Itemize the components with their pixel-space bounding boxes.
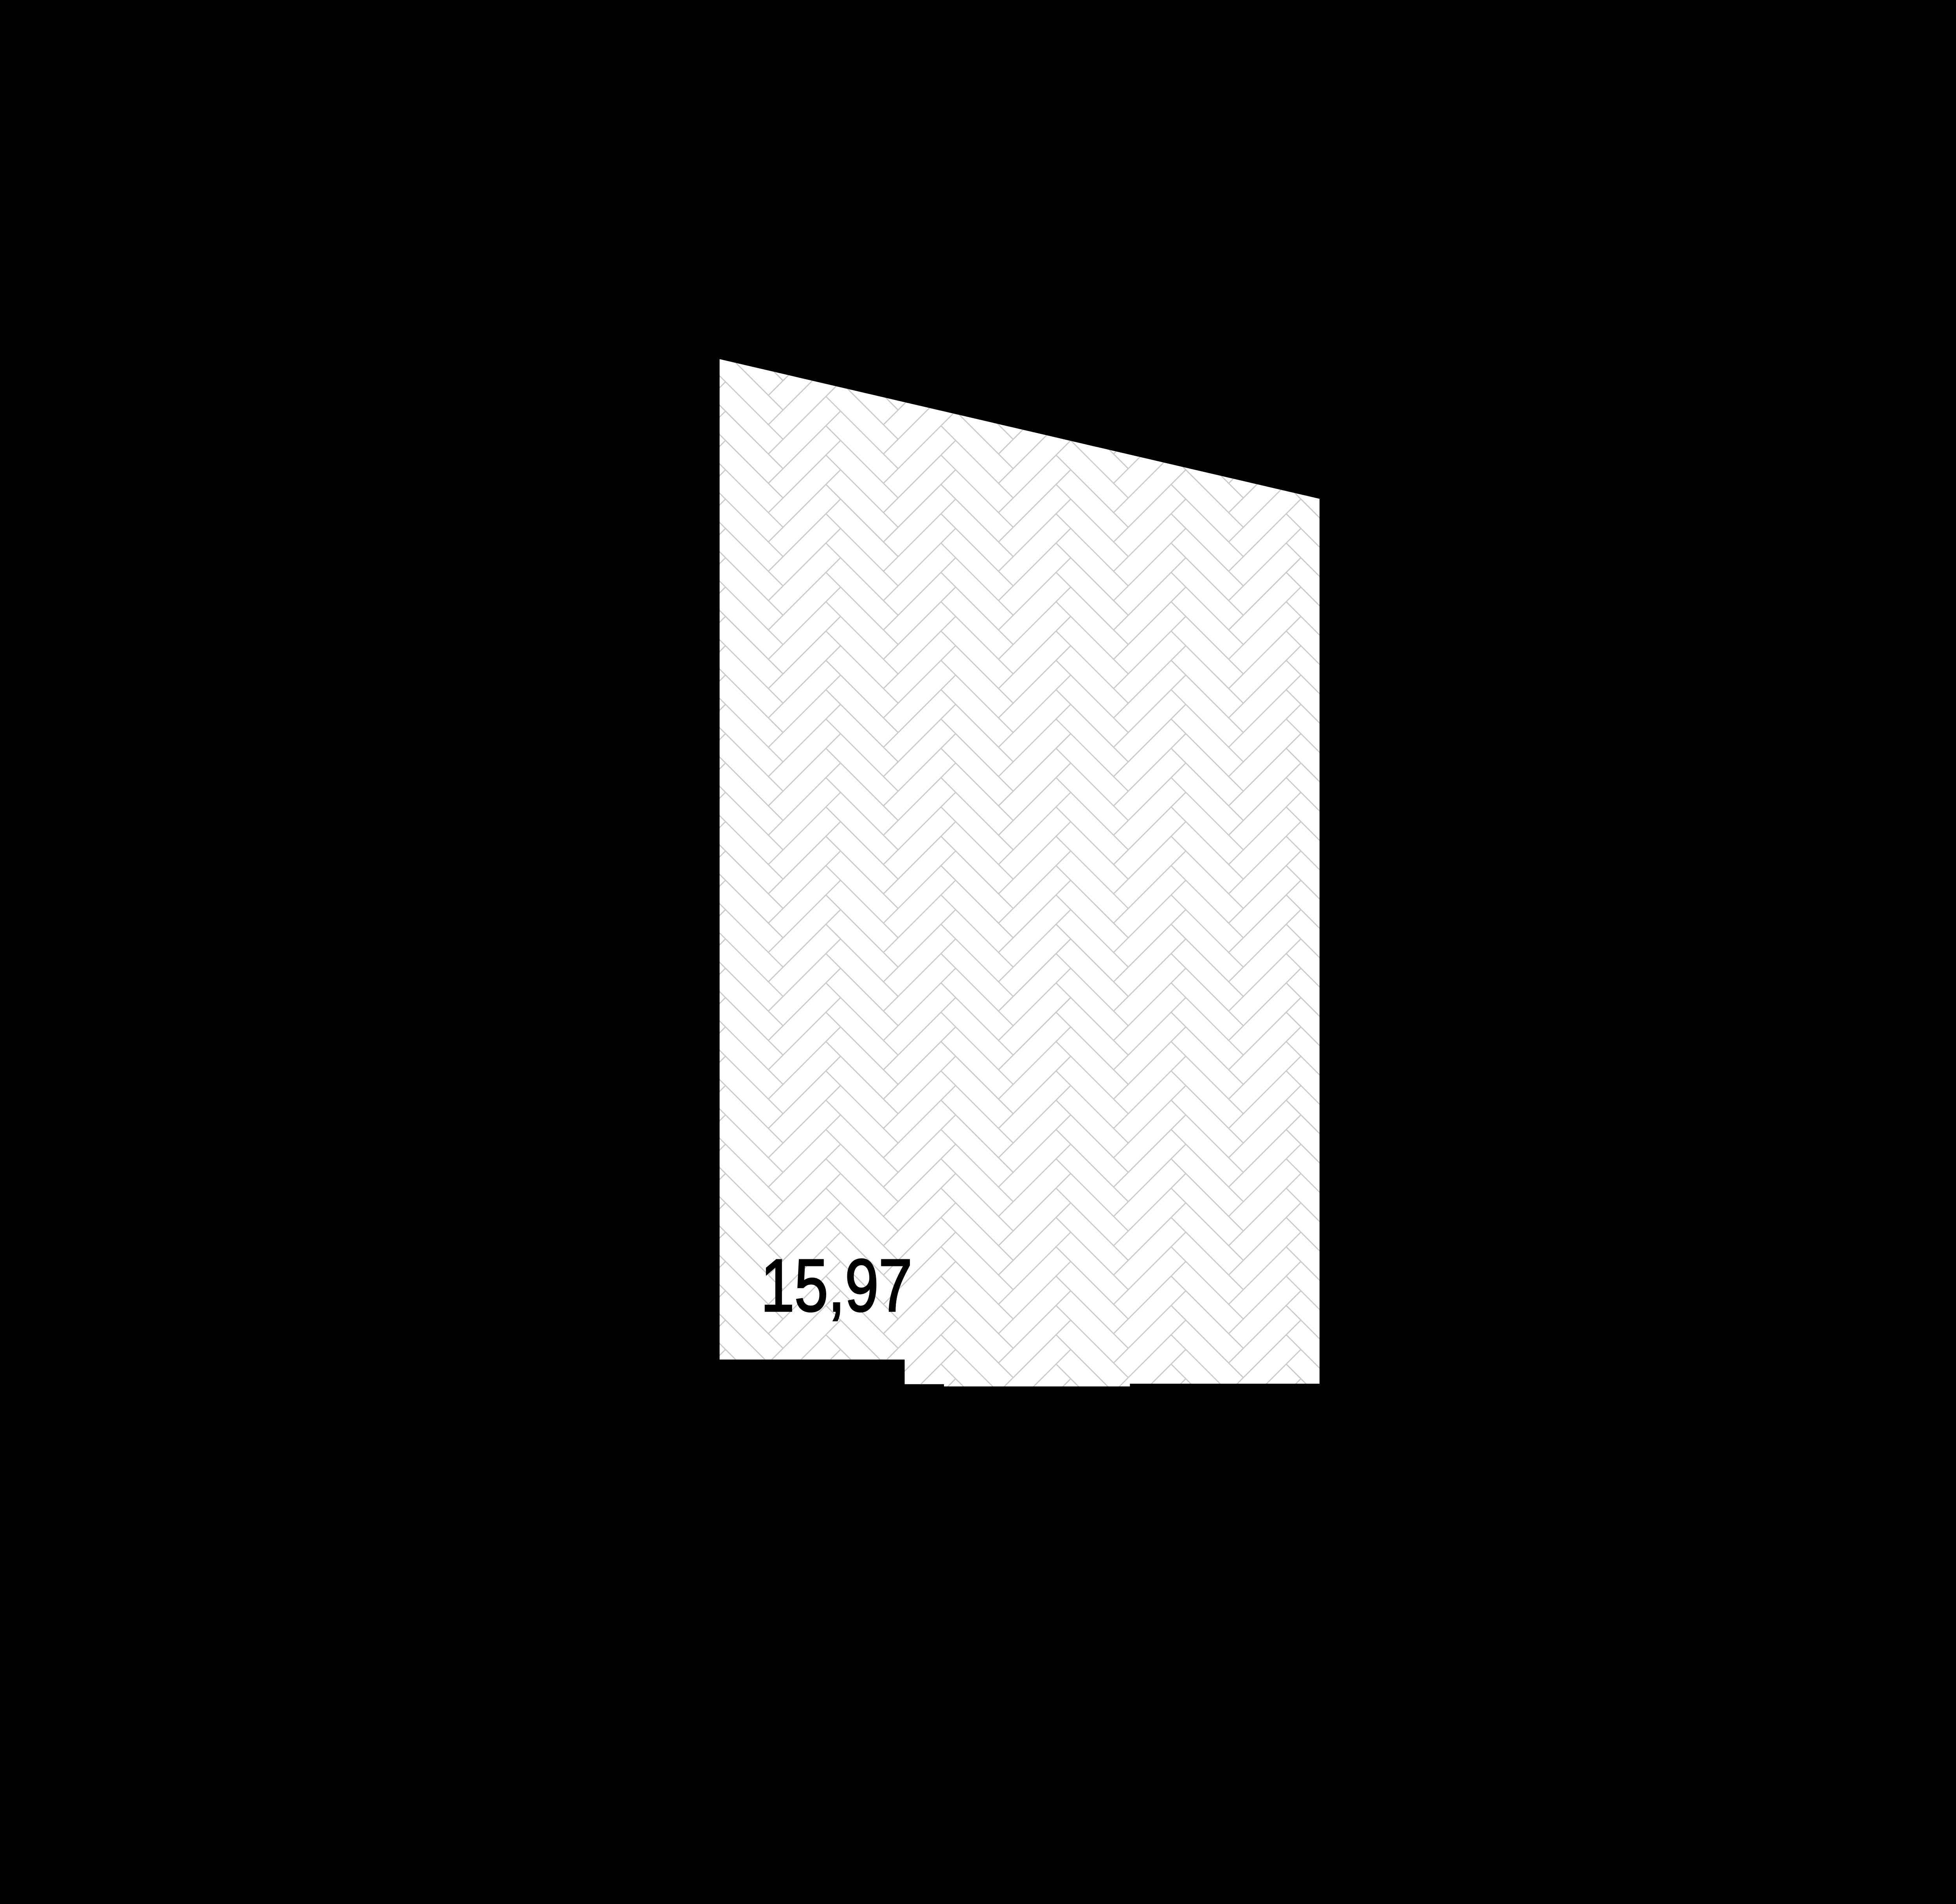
svg-text:15,97: 15,97 <box>761 1244 912 1327</box>
